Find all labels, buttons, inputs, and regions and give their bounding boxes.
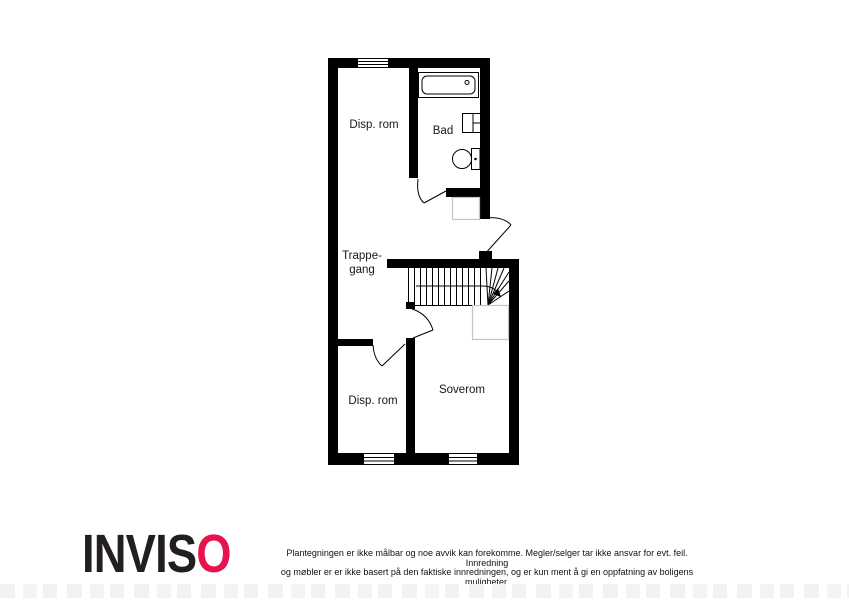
door-swing-icon-soverom [412,309,433,338]
wall-interior-lower [406,338,415,465]
door-swing-icon-bad [418,179,446,203]
floorplan: Disp. rom Bad Trappe- gang Disp. rom Sov… [0,0,849,520]
room-label-disp-rom-lower: Disp. rom [348,395,397,407]
wall-left [328,58,338,465]
bathtub-icon [419,73,479,98]
understair-outline [473,306,509,340]
landing-outline [453,198,480,220]
wall-bottom [328,453,519,465]
wall-lower-disp-top [328,339,373,346]
wall-interior-upper [409,58,418,178]
toilet-icon [453,149,481,170]
footer: INVISO Plantegningen er ikke målbar og n… [0,525,849,583]
room-label-soverom: Soverom [439,384,485,396]
inviso-logo-dark-text: INVIS [82,524,196,584]
room-label-trappegang-line1: Trappe- [342,250,382,262]
disclaimer-line-1: Plantegningen er ikke målbar og noe avvi… [270,549,704,568]
room-label-bad: Bad [433,125,453,137]
room-label-trappegang-line2: gang [349,264,375,276]
disclaimer: Plantegningen er ikke målbar og noe avvi… [270,549,704,587]
doors [373,179,511,366]
wall-right-lower [509,259,519,465]
window-icon-bottom-right [449,454,478,465]
staircase-icon [409,268,510,306]
footer-reflection [0,584,849,598]
door-swing-icon-trappegang-right [484,218,511,255]
sink-icon [463,114,481,133]
inviso-logo-accent-o: O [196,524,230,584]
window-icon-bottom-left [364,454,395,465]
wall-stair-top [387,259,519,268]
room-label-disp-rom-upper: Disp. rom [349,119,398,131]
wall-bad-bottom [446,188,490,197]
wall-door-hinge-post-right [479,251,492,259]
door-swing-icon-disp-rom-lower [373,344,405,366]
inviso-logo: INVISO [82,527,231,581]
window-icon-top [358,59,389,68]
page: Disp. rom Bad Trappe- gang Disp. rom Sov… [0,0,849,600]
